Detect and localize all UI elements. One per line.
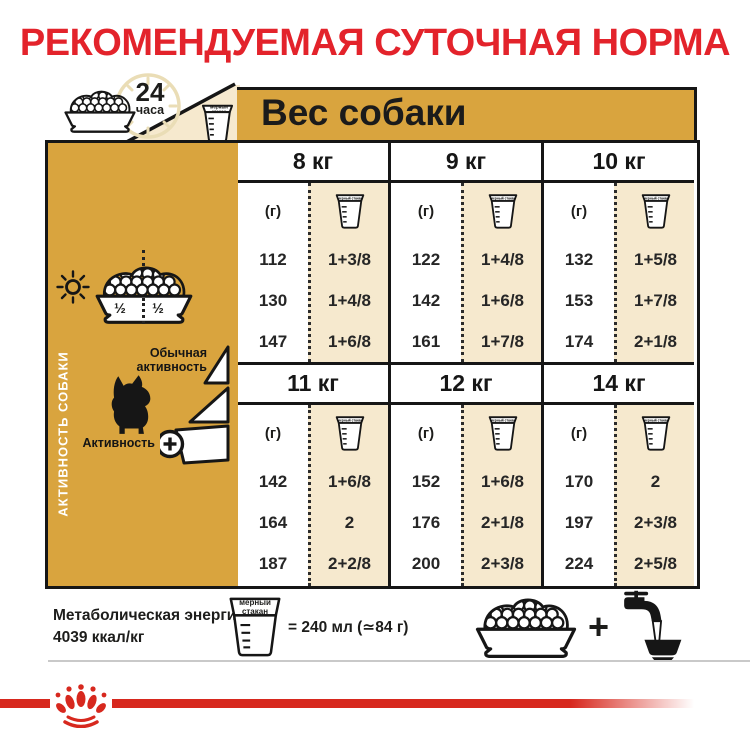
grams-value: 132 bbox=[544, 239, 614, 280]
bowl-kibble-icon bbox=[470, 592, 582, 661]
grams-value: 176 bbox=[391, 502, 461, 543]
weight-group-header: 12 кг bbox=[391, 365, 541, 405]
measuring-cup-icon: мерный стакан bbox=[335, 192, 365, 230]
cup-value: 2+1/8 bbox=[617, 321, 694, 362]
grams-unit-label: (г) bbox=[544, 405, 614, 461]
grams-unit-label: (г) bbox=[238, 183, 308, 239]
weight-header-title: Вес собаки bbox=[261, 92, 467, 134]
cup-value: 1+6/8 bbox=[311, 461, 388, 502]
dog-silhouette-icon bbox=[98, 372, 160, 436]
weight-group-header: 9 кг bbox=[391, 143, 541, 183]
measuring-cup-icon: мерный стакан bbox=[641, 414, 671, 452]
svg-text:мерный стакан: мерный стакан bbox=[643, 418, 668, 422]
cup-value: 1+6/8 bbox=[464, 280, 541, 321]
plus-sign: + bbox=[588, 606, 609, 648]
grams-value: 224 bbox=[544, 543, 614, 584]
energy-value: 4039 ккал/кг bbox=[53, 628, 144, 648]
weight-group: 14 кг (г) 170 197 224 мерный стакан 2 bbox=[544, 365, 694, 586]
grams-unit-label: (г) bbox=[544, 183, 614, 239]
grams-unit-label: (г) bbox=[238, 405, 308, 461]
half-portion-right: ½ bbox=[148, 300, 168, 316]
grams-value: 187 bbox=[238, 543, 308, 584]
cup-equivalence-text: = 240 мл (≃84 г) bbox=[288, 618, 408, 637]
svg-text:мерный стакан: мерный стакан bbox=[337, 196, 362, 200]
cup-value: 1+3/8 bbox=[311, 239, 388, 280]
cup-value: 1+5/8 bbox=[617, 239, 694, 280]
cup-value: 1+4/8 bbox=[311, 280, 388, 321]
gray-divider-line bbox=[48, 660, 750, 662]
grams-value: 197 bbox=[544, 502, 614, 543]
grams-value: 153 bbox=[544, 280, 614, 321]
vertical-activity-label: АКТИВНОСТЬ СОБАКИ bbox=[55, 336, 71, 532]
cup-value: 2 bbox=[311, 502, 388, 543]
grams-value: 142 bbox=[238, 461, 308, 502]
half-portion-left: ½ bbox=[110, 300, 130, 316]
measuring-cup-icon: мерный стакан bbox=[335, 414, 365, 452]
grams-value: 112 bbox=[238, 239, 308, 280]
activity-plus-label: Активность bbox=[58, 436, 155, 450]
cup-subheader: мерный стакан bbox=[311, 405, 388, 461]
cup-value: 1+6/8 bbox=[464, 461, 541, 502]
cup-value: 2+5/8 bbox=[617, 543, 694, 584]
bowl-split-divider bbox=[142, 298, 145, 324]
grams-value: 122 bbox=[391, 239, 461, 280]
grams-value: 147 bbox=[238, 321, 308, 362]
cup-value: 2+1/8 bbox=[464, 502, 541, 543]
moon-icon bbox=[202, 277, 228, 311]
bowl-kibble-icon bbox=[60, 86, 140, 135]
measuring-cup-icon: мерный стакан bbox=[488, 192, 518, 230]
cup-value: 1+7/8 bbox=[617, 280, 694, 321]
weight-group-header: 11 кг bbox=[238, 365, 388, 405]
feeding-guide-page: РЕКОМЕНДУЕМАЯ СУТОЧНАЯ НОРМА 24 часа мер bbox=[0, 0, 750, 750]
cup-value: 2+3/8 bbox=[617, 502, 694, 543]
sun-icon bbox=[56, 270, 90, 304]
weight-group: 12 кг (г) 152 176 200 мерный стакан 1+6/… bbox=[391, 365, 544, 586]
grams-value: 130 bbox=[238, 280, 308, 321]
svg-text:мерный стакан: мерный стакан bbox=[490, 196, 515, 200]
weight-group-header: 14 кг bbox=[544, 365, 694, 405]
weight-header-band: Вес собаки bbox=[237, 87, 697, 140]
crown-logo bbox=[48, 682, 114, 728]
grams-value: 170 bbox=[544, 461, 614, 502]
page-title: РЕКОМЕНДУЕМАЯ СУТОЧНАЯ НОРМА bbox=[0, 22, 750, 65]
cup-label: мерный стакан bbox=[208, 105, 230, 114]
cup-subheader: мерный стакан bbox=[464, 405, 541, 461]
svg-text:мерный стакан: мерный стакан bbox=[337, 418, 362, 422]
cup-value: 1+6/8 bbox=[311, 321, 388, 362]
cup-value: 1+4/8 bbox=[464, 239, 541, 280]
red-divider-line bbox=[112, 699, 700, 708]
weight-group-header: 10 кг bbox=[544, 143, 694, 183]
cup-subheader: мерный стакан bbox=[464, 183, 541, 239]
weight-group: 10 кг (г) 132 153 174 мерный стакан 1+5/… bbox=[544, 143, 694, 365]
weight-group-header: 8 кг bbox=[238, 143, 388, 183]
red-divider-line bbox=[0, 699, 50, 708]
grams-value: 174 bbox=[544, 321, 614, 362]
grams-value: 142 bbox=[391, 280, 461, 321]
grams-unit-label: (г) bbox=[391, 183, 461, 239]
cup-value: 1+7/8 bbox=[464, 321, 541, 362]
measuring-cup-icon: мерный стакан bbox=[641, 192, 671, 230]
measuring-cup-icon: мерный стакан bbox=[488, 414, 518, 452]
activity-level-triangles-icon bbox=[160, 342, 235, 468]
cup-subheader: мерный стакан bbox=[311, 183, 388, 239]
cup-value: 2+3/8 bbox=[464, 543, 541, 584]
cup-subheader: мерный стакан bbox=[617, 183, 694, 239]
cup-label: мерный стакан bbox=[235, 599, 275, 616]
grams-value: 164 bbox=[238, 502, 308, 543]
grams-unit-label: (г) bbox=[391, 405, 461, 461]
svg-text:мерный стакан: мерный стакан bbox=[643, 196, 668, 200]
grams-value: 161 bbox=[391, 321, 461, 362]
weight-group: 9 кг (г) 122 142 161 мерный стакан 1+4/8 bbox=[391, 143, 544, 365]
grams-value: 200 bbox=[391, 543, 461, 584]
weight-group: 11 кг (г) 142 164 187 мерный стакан 1+6/… bbox=[238, 365, 391, 586]
energy-label: Метаболическая энергия: bbox=[53, 606, 251, 626]
cup-value: 2+2/8 bbox=[311, 543, 388, 584]
cup-value: 2 bbox=[617, 461, 694, 502]
weight-group: 8 кг (г) 112 130 147 мерный стакан 1+3/8 bbox=[238, 143, 391, 365]
cup-subheader: мерный стакан bbox=[617, 405, 694, 461]
svg-text:мерный стакан: мерный стакан bbox=[490, 418, 515, 422]
grams-value: 152 bbox=[391, 461, 461, 502]
faucet-water-icon bbox=[614, 588, 686, 660]
